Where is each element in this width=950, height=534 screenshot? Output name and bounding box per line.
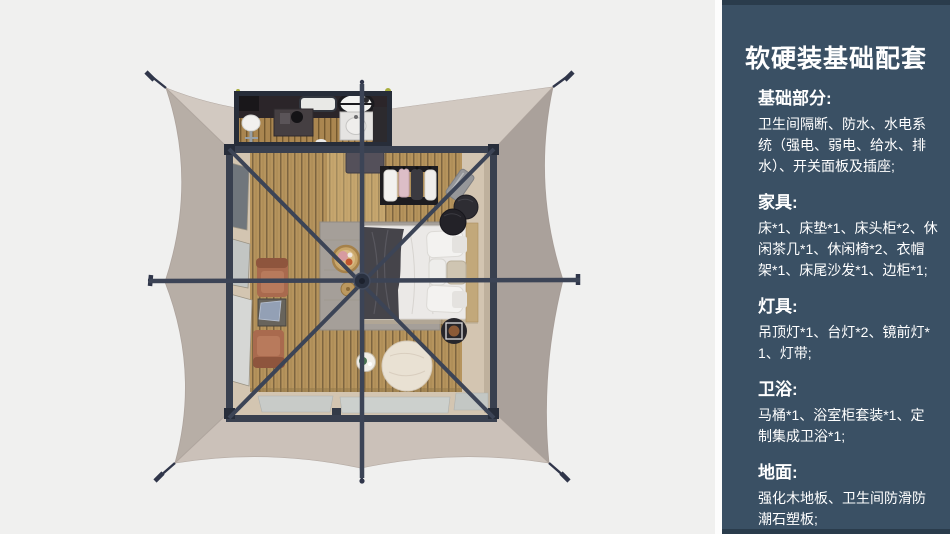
bathroom-cabinet-right	[373, 107, 387, 143]
section-body: 床*1、床垫*1、床头柜*2、休闲茶几*1、休闲椅*2、衣帽架*1、床尾沙发*1…	[758, 218, 938, 281]
bathtub-oval	[339, 94, 373, 115]
tea-table	[258, 299, 286, 326]
section-body: 卫生间隔断、防水、水电系统（强电、弱电、给水、排水）、开关面板及插座;	[758, 114, 938, 177]
section-body: 马桶*1、浴室柜套装*1、定制集成卫浴*1;	[758, 405, 938, 447]
side-table-tray	[441, 318, 467, 344]
bathroom-annex	[236, 88, 391, 145]
page: 软硬装基础配套 基础部分: 卫生间隔断、防水、水电系统（强电、弱电、给水、排水）…	[0, 0, 950, 534]
headboard	[466, 223, 478, 322]
section-furniture: 家具: 床*1、床垫*1、床头柜*2、休闲茶几*1、休闲椅*2、衣帽架*1、床尾…	[758, 193, 938, 281]
bed	[363, 223, 478, 324]
section-heading: 家具:	[758, 193, 938, 213]
section-heading: 基础部分:	[758, 89, 938, 109]
entry-mat	[346, 152, 384, 173]
pillows	[426, 230, 467, 313]
section-basics: 基础部分: 卫生间隔断、防水、水电系统（强电、弱电、给水、排水）、开关面板及插座…	[758, 89, 938, 177]
plank-band-bottom	[250, 388, 462, 392]
center-hub	[354, 273, 370, 289]
section-body: 吊顶灯*1、台灯*2、镜前灯*1、灯带;	[758, 322, 938, 364]
sidebar-title: 软硬装基础配套	[730, 45, 942, 73]
section-bathroom: 卫浴: 马桶*1、浴室柜套装*1、定制集成卫浴*1;	[758, 380, 938, 447]
floorplan-render	[0, 0, 722, 534]
clothes-rack	[380, 166, 438, 205]
tray-table	[357, 353, 376, 372]
spec-sidebar: 软硬装基础配套 基础部分: 卫生间隔断、防水、水电系统（强电、弱电、给水、排水）…	[722, 0, 950, 534]
lounge-chair-bottom	[253, 330, 285, 368]
vanity-cabinet	[274, 109, 313, 136]
white-divider	[715, 0, 722, 534]
section-flooring: 地面: 强化木地板、卫生间防滑防潮石塑板;	[758, 463, 938, 530]
section-heading: 卫浴:	[758, 380, 938, 400]
section-lighting: 灯具: 吊顶灯*1、台灯*2、镜前灯*1、灯带;	[758, 297, 938, 364]
washbasin-unit	[340, 112, 373, 140]
section-heading: 灯具:	[758, 297, 938, 317]
sidebar-sections: 基础部分: 卫生间隔断、防水、水电系统（强电、弱电、给水、排水）、开关面板及插座…	[722, 89, 950, 530]
lounge-chair-top	[256, 258, 288, 297]
section-body: 强化木地板、卫生间防滑防潮石塑板;	[758, 488, 938, 530]
section-heading: 地面:	[758, 463, 938, 483]
